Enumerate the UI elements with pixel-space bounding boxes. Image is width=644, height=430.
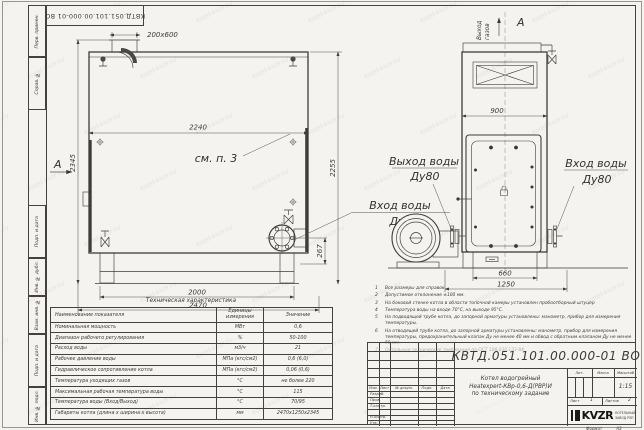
spec-value: 0,6 (264, 322, 333, 333)
note-number: 1 (372, 286, 385, 292)
spec-row: Габариты котла (длина х ширина х высота)… (51, 408, 333, 419)
spec-name: Диапазон рабочего регулирования (51, 333, 217, 344)
boiler-body-side (462, 52, 547, 252)
spec-units: МПа (кгс/см2) (217, 354, 264, 365)
spec-units: % (217, 333, 264, 344)
spec-col-name: Наименование показателя (51, 307, 217, 322)
tb-line (368, 397, 454, 398)
spec-value: 50-100 (264, 333, 333, 344)
tb-line (368, 377, 454, 378)
spec-header-row: Наименование показателя Единицы измерени… (51, 307, 333, 322)
door-handle (456, 197, 471, 200)
note-item: 5На подводящей трубе котла, до запорной … (372, 315, 635, 328)
note-text: На боковой стенке котла в области топочн… (385, 301, 635, 307)
note-item: 4Температура воды на входе 70°С, на выхо… (372, 308, 635, 314)
tb-name-line: Heatexpert-КВр-0,6-Д(РВР)И (469, 384, 552, 392)
spec-value: 70/95 (264, 398, 333, 409)
tb-mass-label: Масса (592, 371, 614, 375)
spec-units: МПа (кгс/см2) (217, 365, 264, 376)
tb-doc-number: КВТД.051.101.00.000-01 ВО (454, 343, 637, 369)
side-outlet-dn: Ду80 (409, 170, 439, 183)
tb-col-izm: Изм. (368, 386, 379, 390)
support-legs (95, 253, 299, 284)
spec-row: Температура уходящих газов°Сне более 220 (51, 376, 333, 387)
spec-section: Техническая характеристика Наименование … (50, 298, 332, 420)
title-block: Изм. Лист № докум. Подп. Дата Разраб. Пр… (367, 342, 636, 425)
spec-name: Гидравлическое сопротивление котла (51, 365, 217, 376)
dim-base-inner: 2000 (188, 289, 206, 297)
spec-units: °С (217, 398, 264, 409)
note-item: 3На боковой стенке котла в области топоч… (372, 301, 635, 307)
kvzr-logo-mark (569, 410, 580, 421)
dim-side-base-inner: 660 (498, 270, 512, 278)
tb-line (368, 420, 454, 421)
spec-col-value: Значение (264, 307, 333, 322)
lifting-lug-right (289, 56, 297, 66)
tb-col-podp: Подп. (418, 386, 436, 390)
tb-row-prov: Пров. (370, 398, 381, 402)
tb-sheet-label: Лист (570, 399, 579, 403)
dim-chimney: 200х600 (147, 31, 178, 39)
inlet-valve-front (284, 210, 293, 224)
tb-col-data: Дата (436, 386, 454, 390)
spec-row: Максимальная рабочая температура воды°С1… (51, 387, 333, 398)
format-label: ФорматА3 (586, 426, 622, 430)
front-dimensions (50, 32, 450, 313)
door-lock-icon (501, 186, 508, 196)
side-inlet-label: Вход воды (565, 157, 627, 170)
dim-height-left: 2345 (69, 154, 77, 172)
side-outlet-label: Выход воды (389, 155, 459, 168)
tb-lit-label: Лит. (567, 371, 592, 375)
tb-line (567, 377, 637, 378)
tb-row-razrab: Разраб. (370, 392, 385, 396)
note-text: Температура воды на входе 70°С, на выход… (385, 308, 635, 314)
spec-name: Температура воды (Вход/Выход) (51, 398, 217, 409)
spec-name: Габариты котла (длина х ширина х высота) (51, 408, 217, 419)
side-pipe-stub (83, 192, 89, 206)
chimney-outlet (109, 40, 140, 68)
tb-row-tkontr: Т.контр. (370, 404, 386, 408)
kvzr-logo: KVZR КОТЕЛЬНЫЙ ЗАВОД РЭП (567, 405, 637, 426)
tb-line (368, 409, 454, 410)
spec-value: не более 220 (264, 376, 333, 387)
tb-line (368, 351, 454, 352)
blower-fan (392, 214, 458, 268)
see-note-label: см. п. 3 (195, 152, 238, 165)
note-text: Допустимое отклонение ±100 мм. (385, 293, 635, 299)
duct-valve (541, 45, 556, 64)
side-inlet-dn: Ду80 (581, 173, 611, 186)
furnace-door (456, 135, 541, 252)
note-text: Все размеры для справок (385, 286, 635, 292)
spec-value: 21 (264, 344, 333, 355)
tb-scale-label: Масштаб (614, 371, 637, 375)
tb-row-nkontr: Н.контр. (370, 415, 387, 419)
spec-row: Температура воды (Вход/Выход)°С70/95 (51, 398, 333, 409)
spec-row: Гидравлическое сопротивление котлаМПа (к… (51, 365, 333, 376)
spec-value: 2470х1250х2345 (264, 408, 333, 419)
tb-sheets-label: Листов (605, 399, 619, 403)
tb-scale-value: 1:15 (614, 383, 637, 390)
tb-line (602, 397, 603, 405)
spec-row: Расход водым3/ч21 (51, 344, 333, 355)
spec-value: 0,06 (0,6) (264, 365, 333, 376)
note-text: На подводящей трубе котла, до запорной а… (385, 315, 635, 328)
note-item: 2Допустимое отклонение ±100 мм. (372, 293, 635, 299)
spec-row: Номинальная мощностьМВт0,6 (51, 322, 333, 333)
tb-sheets-value: 2 (628, 398, 631, 403)
dim-width-top: 2240 (189, 124, 207, 132)
spec-units: м3/ч (217, 344, 264, 355)
spec-value: 115 (264, 387, 333, 398)
section-arrow-label: А (53, 158, 62, 171)
spec-row: Диапазон рабочего регулирования%50-100 (51, 333, 333, 344)
spec-units: °С (217, 387, 264, 398)
view-a-label: А (516, 16, 525, 29)
format-value: А3 (616, 426, 621, 430)
gas-outlet-label-1: Выход (477, 20, 483, 40)
tb-line (583, 377, 584, 397)
spec-title: Техническая характеристика (50, 298, 332, 304)
dim-side-width: 900 (490, 107, 504, 115)
spec-units: мм (217, 408, 264, 419)
note-number: 2 (372, 293, 385, 299)
front-view: 200х600 2240 2345 2255 267 2000 2470 см.… (50, 31, 450, 313)
tb-name-line: Котел водогрейный (481, 376, 541, 384)
note-number: 4 (372, 308, 385, 314)
spec-name: Номинальная мощность (51, 322, 217, 333)
tb-sheet-value: 1 (590, 398, 593, 403)
tb-name-line: по техническому задание (472, 391, 550, 399)
spec-name: Рабочее давление воды (51, 354, 217, 365)
spec-row: Рабочее давление водыМПа (кгс/см2)0,6 (6… (51, 354, 333, 365)
kvzr-caption-line: ЗАВОД РЭП (615, 416, 635, 420)
gas-duct (463, 43, 541, 52)
gas-outlet-label-2: газов (485, 23, 491, 40)
spec-name: Максимальная рабочая температура воды (51, 387, 217, 398)
tb-col-list: Лист (379, 386, 390, 390)
spec-table: Наименование показателя Единицы измерени… (50, 307, 333, 420)
note-item: 1Все размеры для справок (372, 286, 635, 292)
spec-name: Расход воды (51, 344, 217, 355)
position-marks (97, 139, 297, 206)
format-word: Формат (586, 426, 602, 430)
front-inlet-label: Вход воды (369, 199, 431, 212)
inlet-flange-side (547, 226, 563, 247)
spec-name: Температура уходящих газов (51, 376, 217, 387)
lifting-lug-left (99, 56, 107, 66)
tb-line (368, 368, 454, 369)
tb-row-utv: Утв. (370, 421, 378, 425)
spec-units: °С (217, 376, 264, 387)
drawing-sheet: kotel-kvzr.rukotel-kvzr.rukotel-kvzr.ruk… (0, 0, 644, 430)
dim-height-right: 2255 (329, 159, 337, 177)
tb-col-doc: № докум. (390, 386, 418, 390)
spec-value: 0,6 (6,0) (264, 354, 333, 365)
spec-units: МВт (217, 322, 264, 333)
drain-valve (101, 231, 109, 247)
tb-line (368, 360, 454, 361)
tb-product-name: Котел водогрейный Heatexpert-КВр-0,6-Д(Р… (454, 369, 567, 426)
tb-line (575, 377, 576, 397)
note-number: 5 (372, 315, 385, 328)
kvzr-logo-caption: КОТЕЛЬНЫЙ ЗАВОД РЭП (615, 411, 635, 419)
side-view: Выход газов А 900 660 1250 Выход воды Ду… (388, 12, 628, 292)
dim-flange-height: 267 (316, 244, 324, 258)
spec-col-units: Единицы измерения (217, 307, 264, 322)
kvzr-logo-text: KVZR (582, 409, 613, 422)
note-number: 3 (372, 301, 385, 307)
